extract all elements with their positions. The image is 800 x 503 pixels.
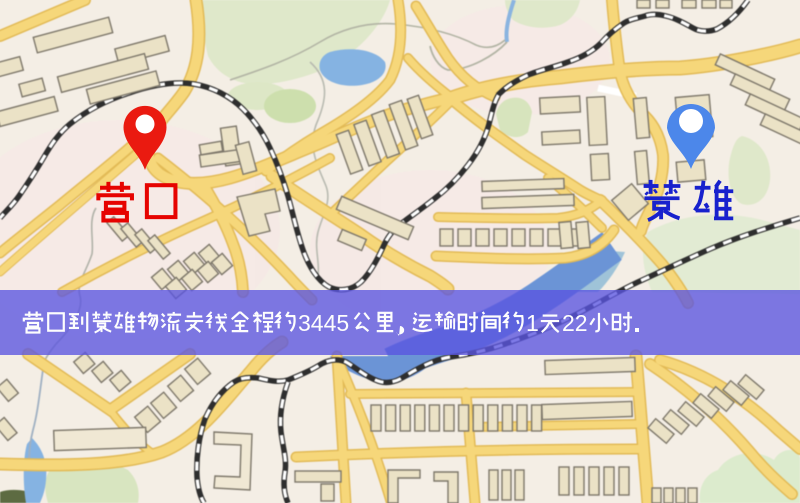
svg-text:3445: 3445 [298, 310, 349, 336]
svg-text:22: 22 [562, 310, 588, 336]
svg-text:1: 1 [526, 310, 539, 336]
